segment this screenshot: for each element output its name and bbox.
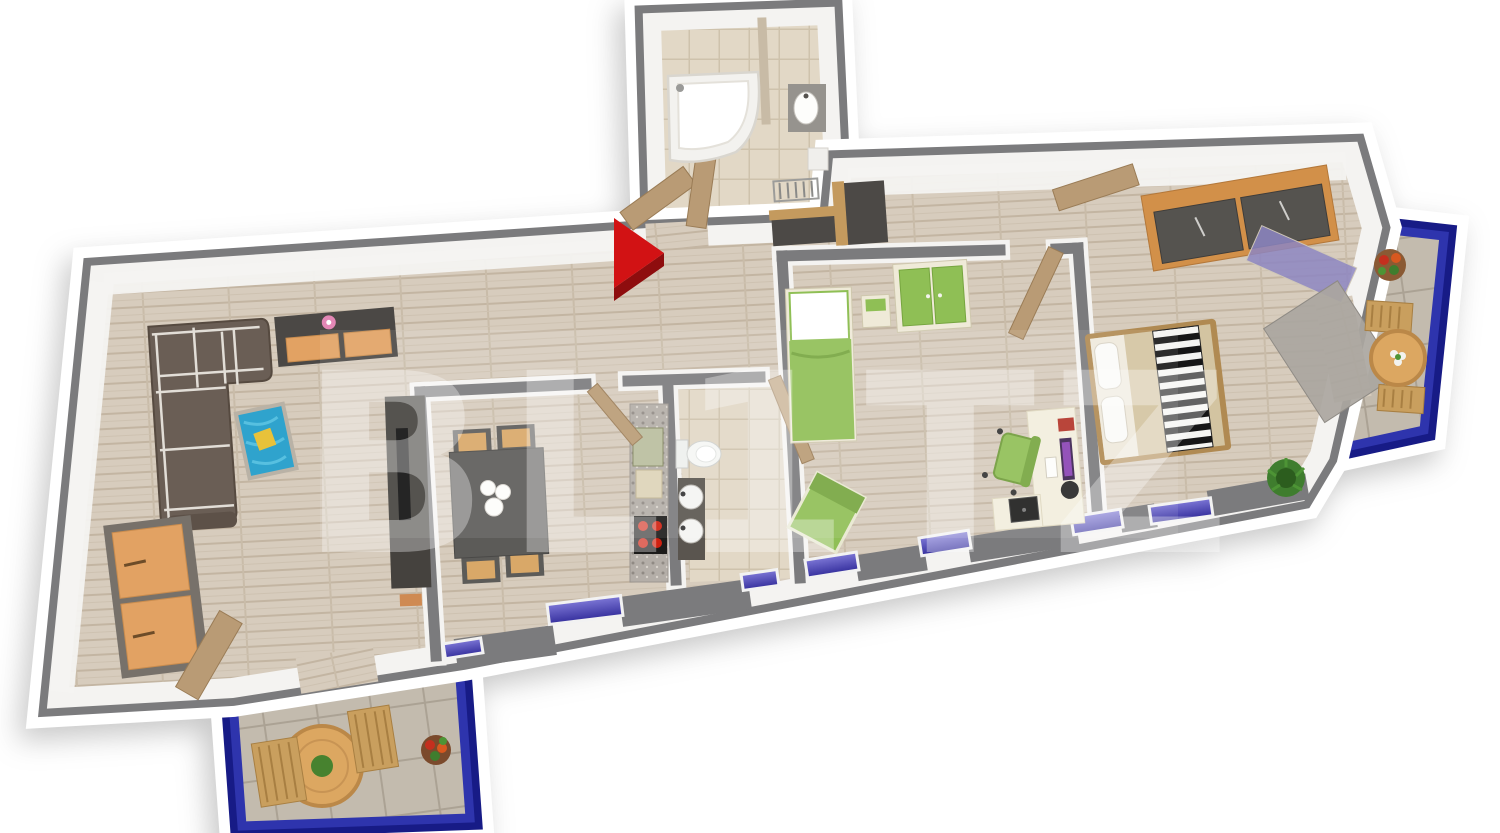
flower-pot [421,735,451,765]
watermark-text: BL1TZ [299,320,1245,611]
floorplan-screenshot: BL1TZ [0,0,1500,833]
bench-left [251,737,306,807]
storage-cabinet [103,515,209,679]
flower-pot [1374,249,1406,281]
bath-partition [762,22,766,120]
floor-plan-image: BL1TZ [0,0,1500,833]
bath-faucet [676,84,684,92]
bath-cabinet [808,148,828,170]
table-plant [311,755,333,777]
apartment-plan: BL1TZ [58,16,1444,826]
wall-kids-top [782,250,1000,256]
chair-bottom [1377,384,1425,413]
bath-sink [788,84,826,132]
chair-top [1365,300,1413,333]
bench-right [347,705,398,773]
watermark: BL1TZ [299,320,1245,611]
shoe-bench [769,206,841,247]
hall-cabinet [832,178,888,245]
